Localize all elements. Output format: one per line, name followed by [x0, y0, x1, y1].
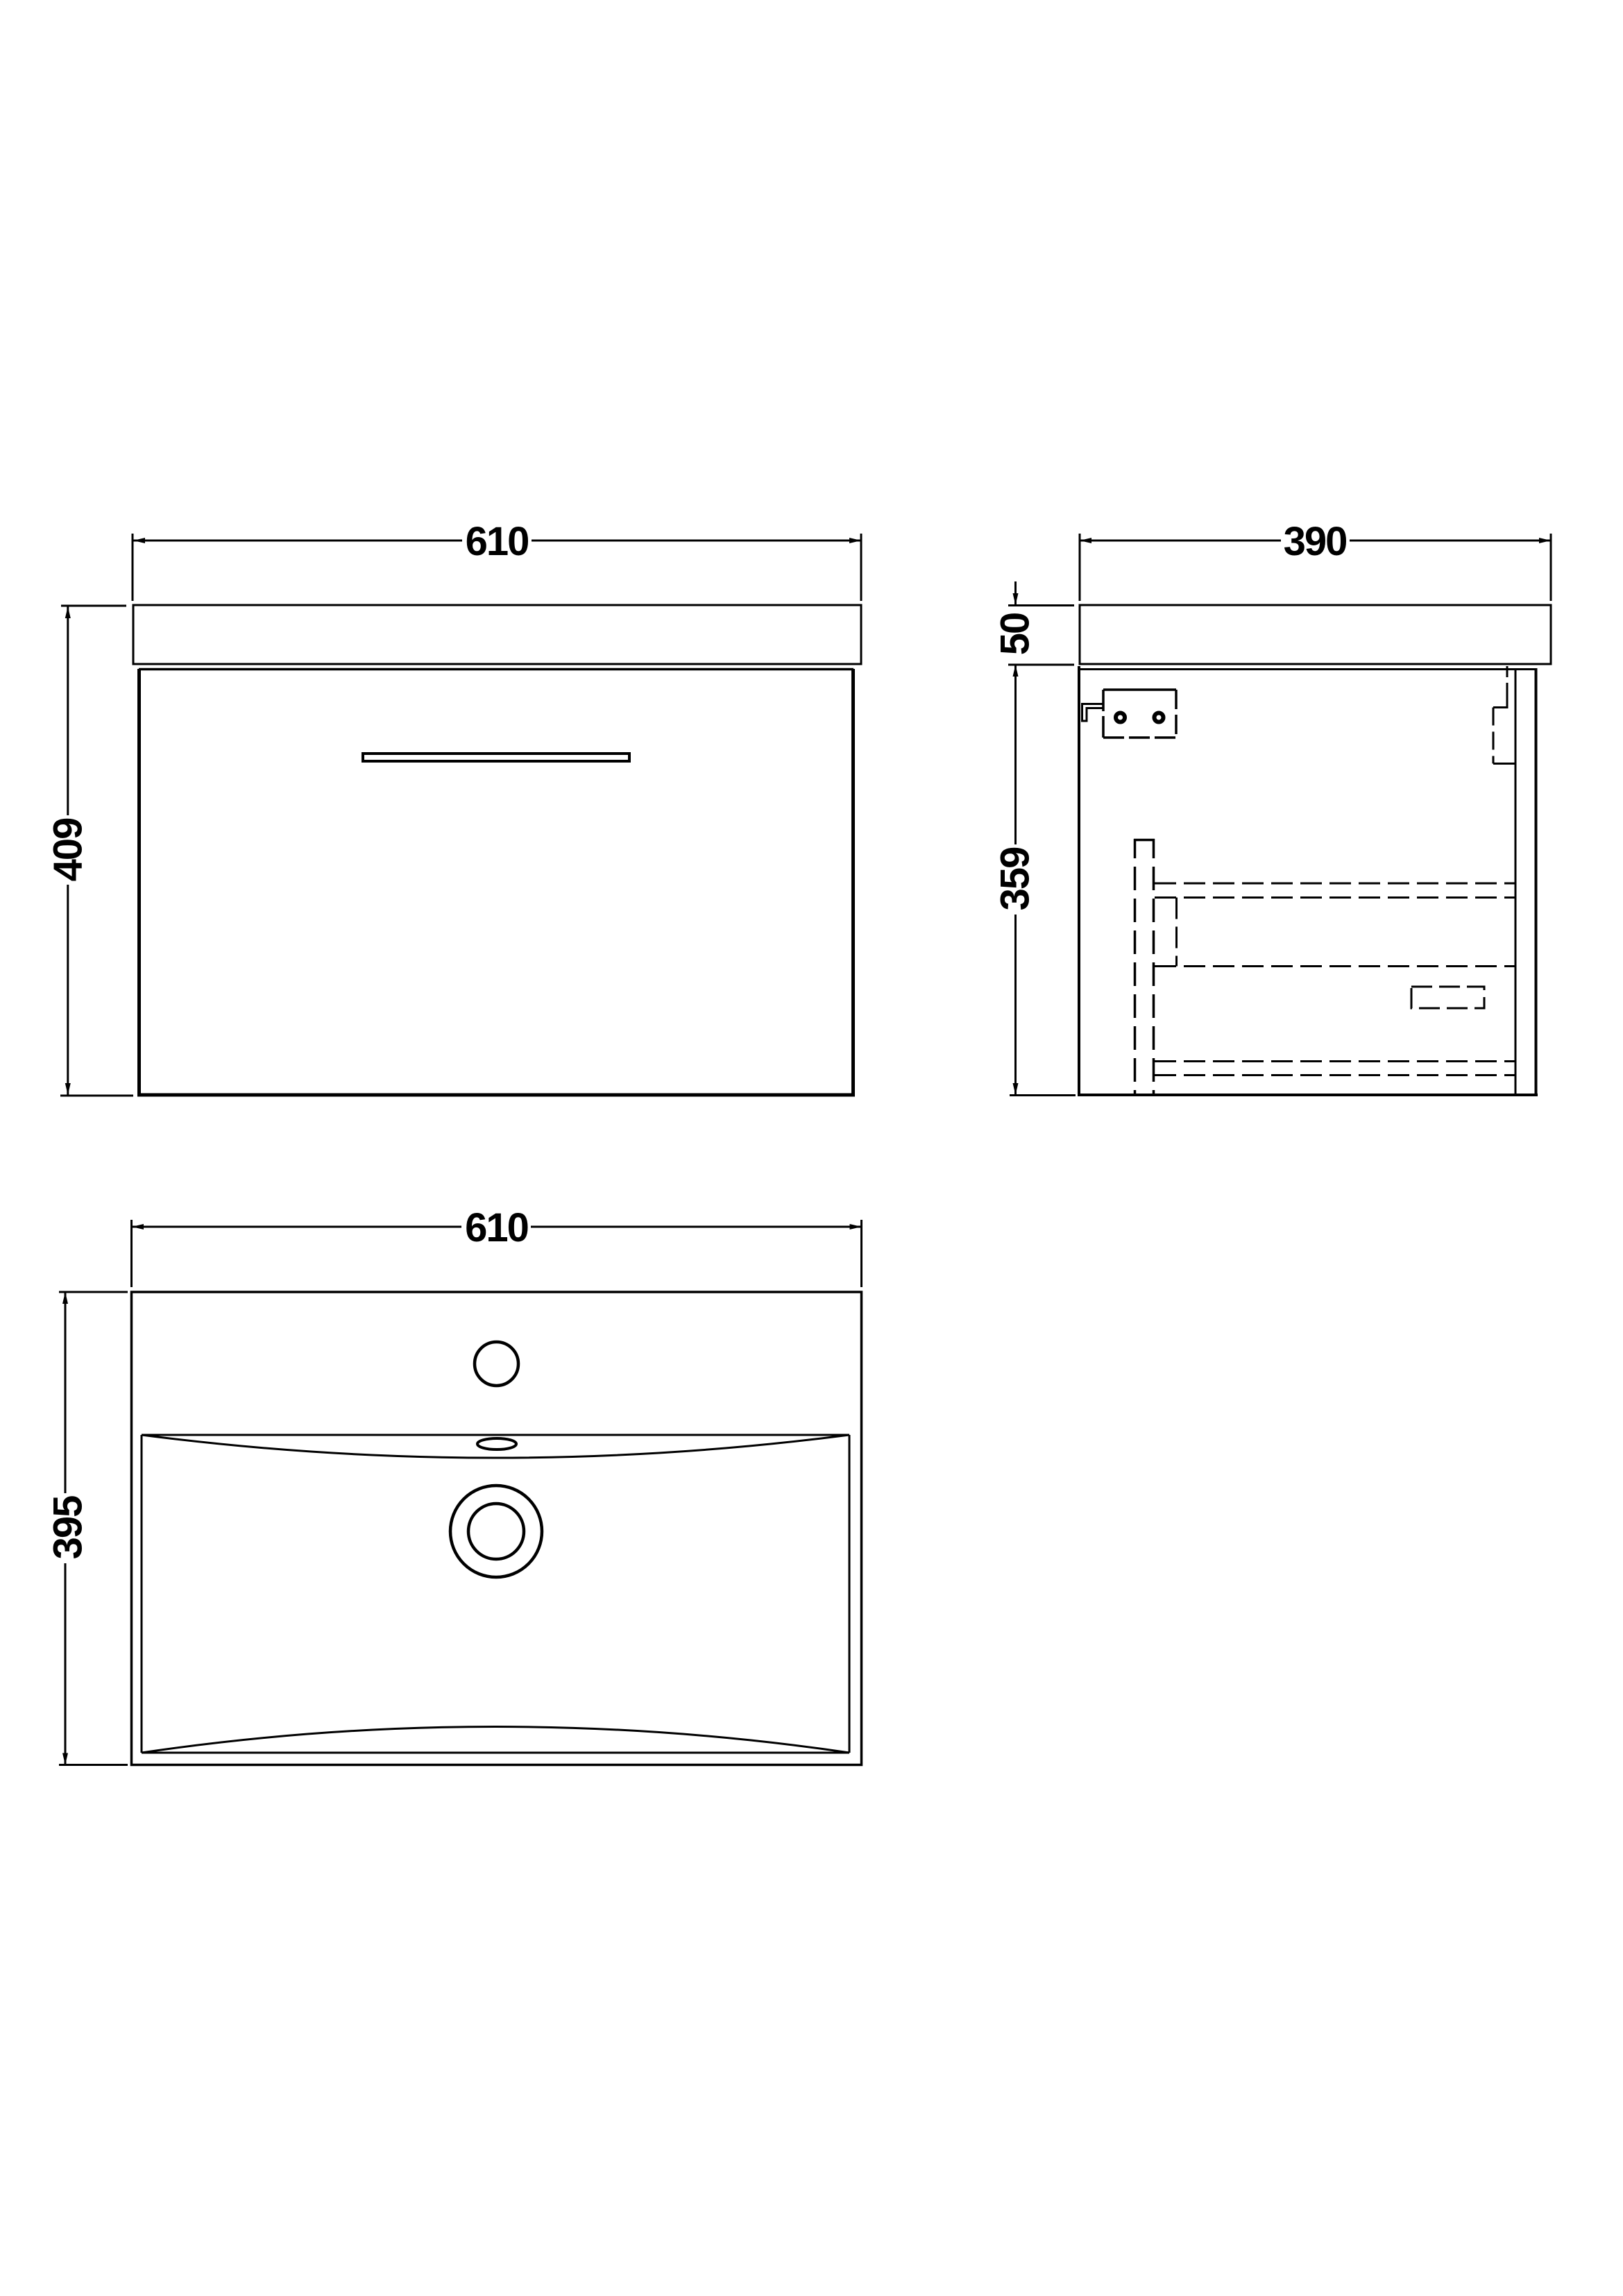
svg-text:610: 610 [466, 519, 529, 564]
svg-text:359: 359 [993, 847, 1038, 911]
svg-text:610: 610 [465, 1205, 528, 1250]
svg-text:390: 390 [1284, 519, 1347, 564]
svg-text:409: 409 [46, 818, 91, 882]
svg-text:50: 50 [993, 613, 1038, 656]
svg-text:395: 395 [46, 1496, 91, 1560]
